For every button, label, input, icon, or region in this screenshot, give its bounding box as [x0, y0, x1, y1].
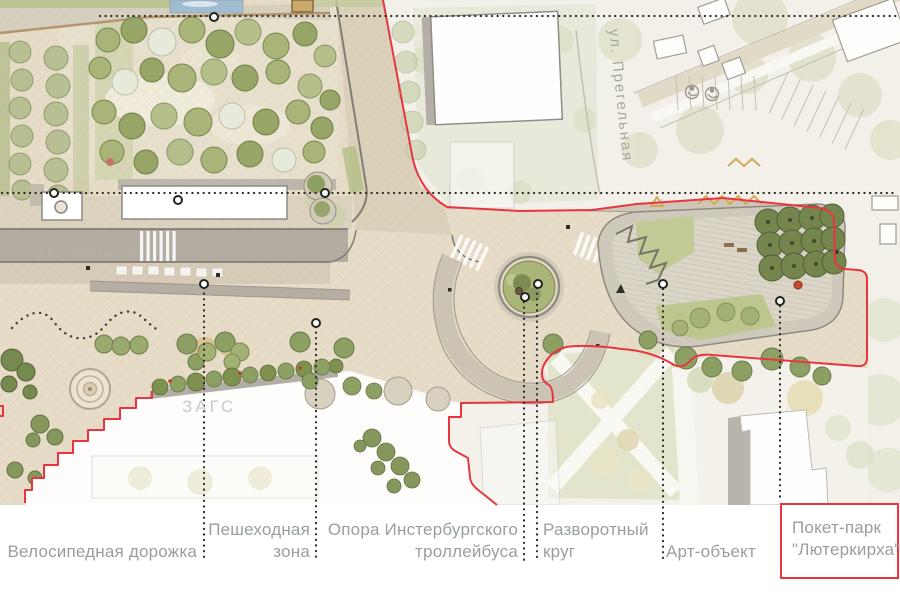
- site-plan-map: [0, 0, 900, 600]
- legend-pocket-park-line1: Покет-парк: [792, 517, 900, 539]
- legend-turning-circle-line1: Разворотный: [543, 519, 649, 541]
- legend-art-object-label: Арт-объект: [666, 541, 756, 563]
- legend-pocket-park-label: Покет-парк "Лютеркирха": [792, 517, 900, 561]
- fountain: [70, 369, 110, 409]
- legend-swatch: [292, 0, 313, 12]
- lenina-street-label: ул. Ленина: [36, 245, 137, 261]
- bench: [737, 248, 747, 252]
- legend-trolleybus-pole-label: Опора Инстербургского троллейбуса: [320, 519, 518, 563]
- legend-trolleybus-pole-line1: Опора Инстербургского: [320, 519, 518, 541]
- legend-turning-circle-line2: круг: [543, 541, 649, 563]
- sculpture: [55, 201, 67, 213]
- legend-pedestrian-zone-line2: зона: [150, 541, 310, 563]
- legend-pedestrian-zone-line1: Пешеходная: [150, 519, 310, 541]
- zags-label: ЗАГС: [182, 397, 236, 417]
- legend-pedestrian-zone-label: Пешеходная зона: [150, 519, 310, 563]
- site-plan-screenshot: ЗАГС ул. Ленина ул. Прегельная Велосипед…: [0, 0, 900, 600]
- legend-turning-circle-label: Разворотный круг: [543, 519, 649, 563]
- long-building: [122, 186, 287, 219]
- legend-pocket-park-line2: "Лютеркирха": [792, 539, 900, 561]
- legend-trolleybus-pole-line2: троллейбуса: [320, 541, 518, 563]
- bench: [724, 243, 734, 247]
- large-building: [422, 11, 563, 125]
- art-object-dot: [794, 281, 802, 289]
- trolleybus-pole: [516, 288, 523, 295]
